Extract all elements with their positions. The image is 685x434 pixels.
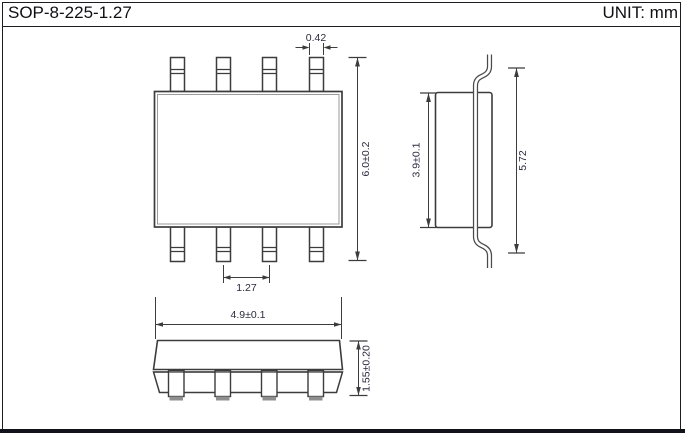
dim-package-height-label: 1.55±0.20 (361, 345, 373, 392)
front-view-lead-feet (170, 397, 323, 401)
top-view-top-pins (171, 58, 324, 92)
front-view-upper-body (154, 341, 343, 370)
side-view-body (436, 93, 493, 228)
front-view (154, 341, 343, 401)
dim-lead-tip-span-label: 5.72 (517, 150, 529, 171)
dim-pin-width: 0.42 (296, 32, 338, 55)
side-view (436, 55, 493, 269)
dim-body-width: 3.9±0.1 (411, 93, 438, 228)
dim-lead-span-total: 6.0±0.2 (349, 58, 373, 261)
dim-lead-span-total-label: 6.0±0.2 (360, 141, 372, 176)
top-view-body (155, 92, 343, 228)
drawing-page: SOP-8-225-1.27 UNIT: mm (0, 0, 685, 434)
top-view-bottom-pins (171, 227, 324, 262)
dim-lead-tip-span: 5.72 (508, 68, 529, 253)
dim-pin-pitch-label: 1.27 (236, 282, 257, 294)
dim-body-length: 4.9±0.1 (156, 297, 342, 339)
dim-pin-pitch: 1.27 (224, 265, 270, 294)
dim-package-height: 1.55±0.20 (350, 341, 373, 396)
dim-pin-width-label: 0.42 (306, 32, 327, 44)
top-view (155, 58, 343, 262)
footer-accent-bar (0, 429, 685, 433)
package-drawing: 0.42 6.0±0.2 1.27 (0, 0, 685, 434)
dim-body-length-label: 4.9±0.1 (231, 309, 266, 321)
dim-body-width-label: 3.9±0.1 (411, 142, 423, 177)
